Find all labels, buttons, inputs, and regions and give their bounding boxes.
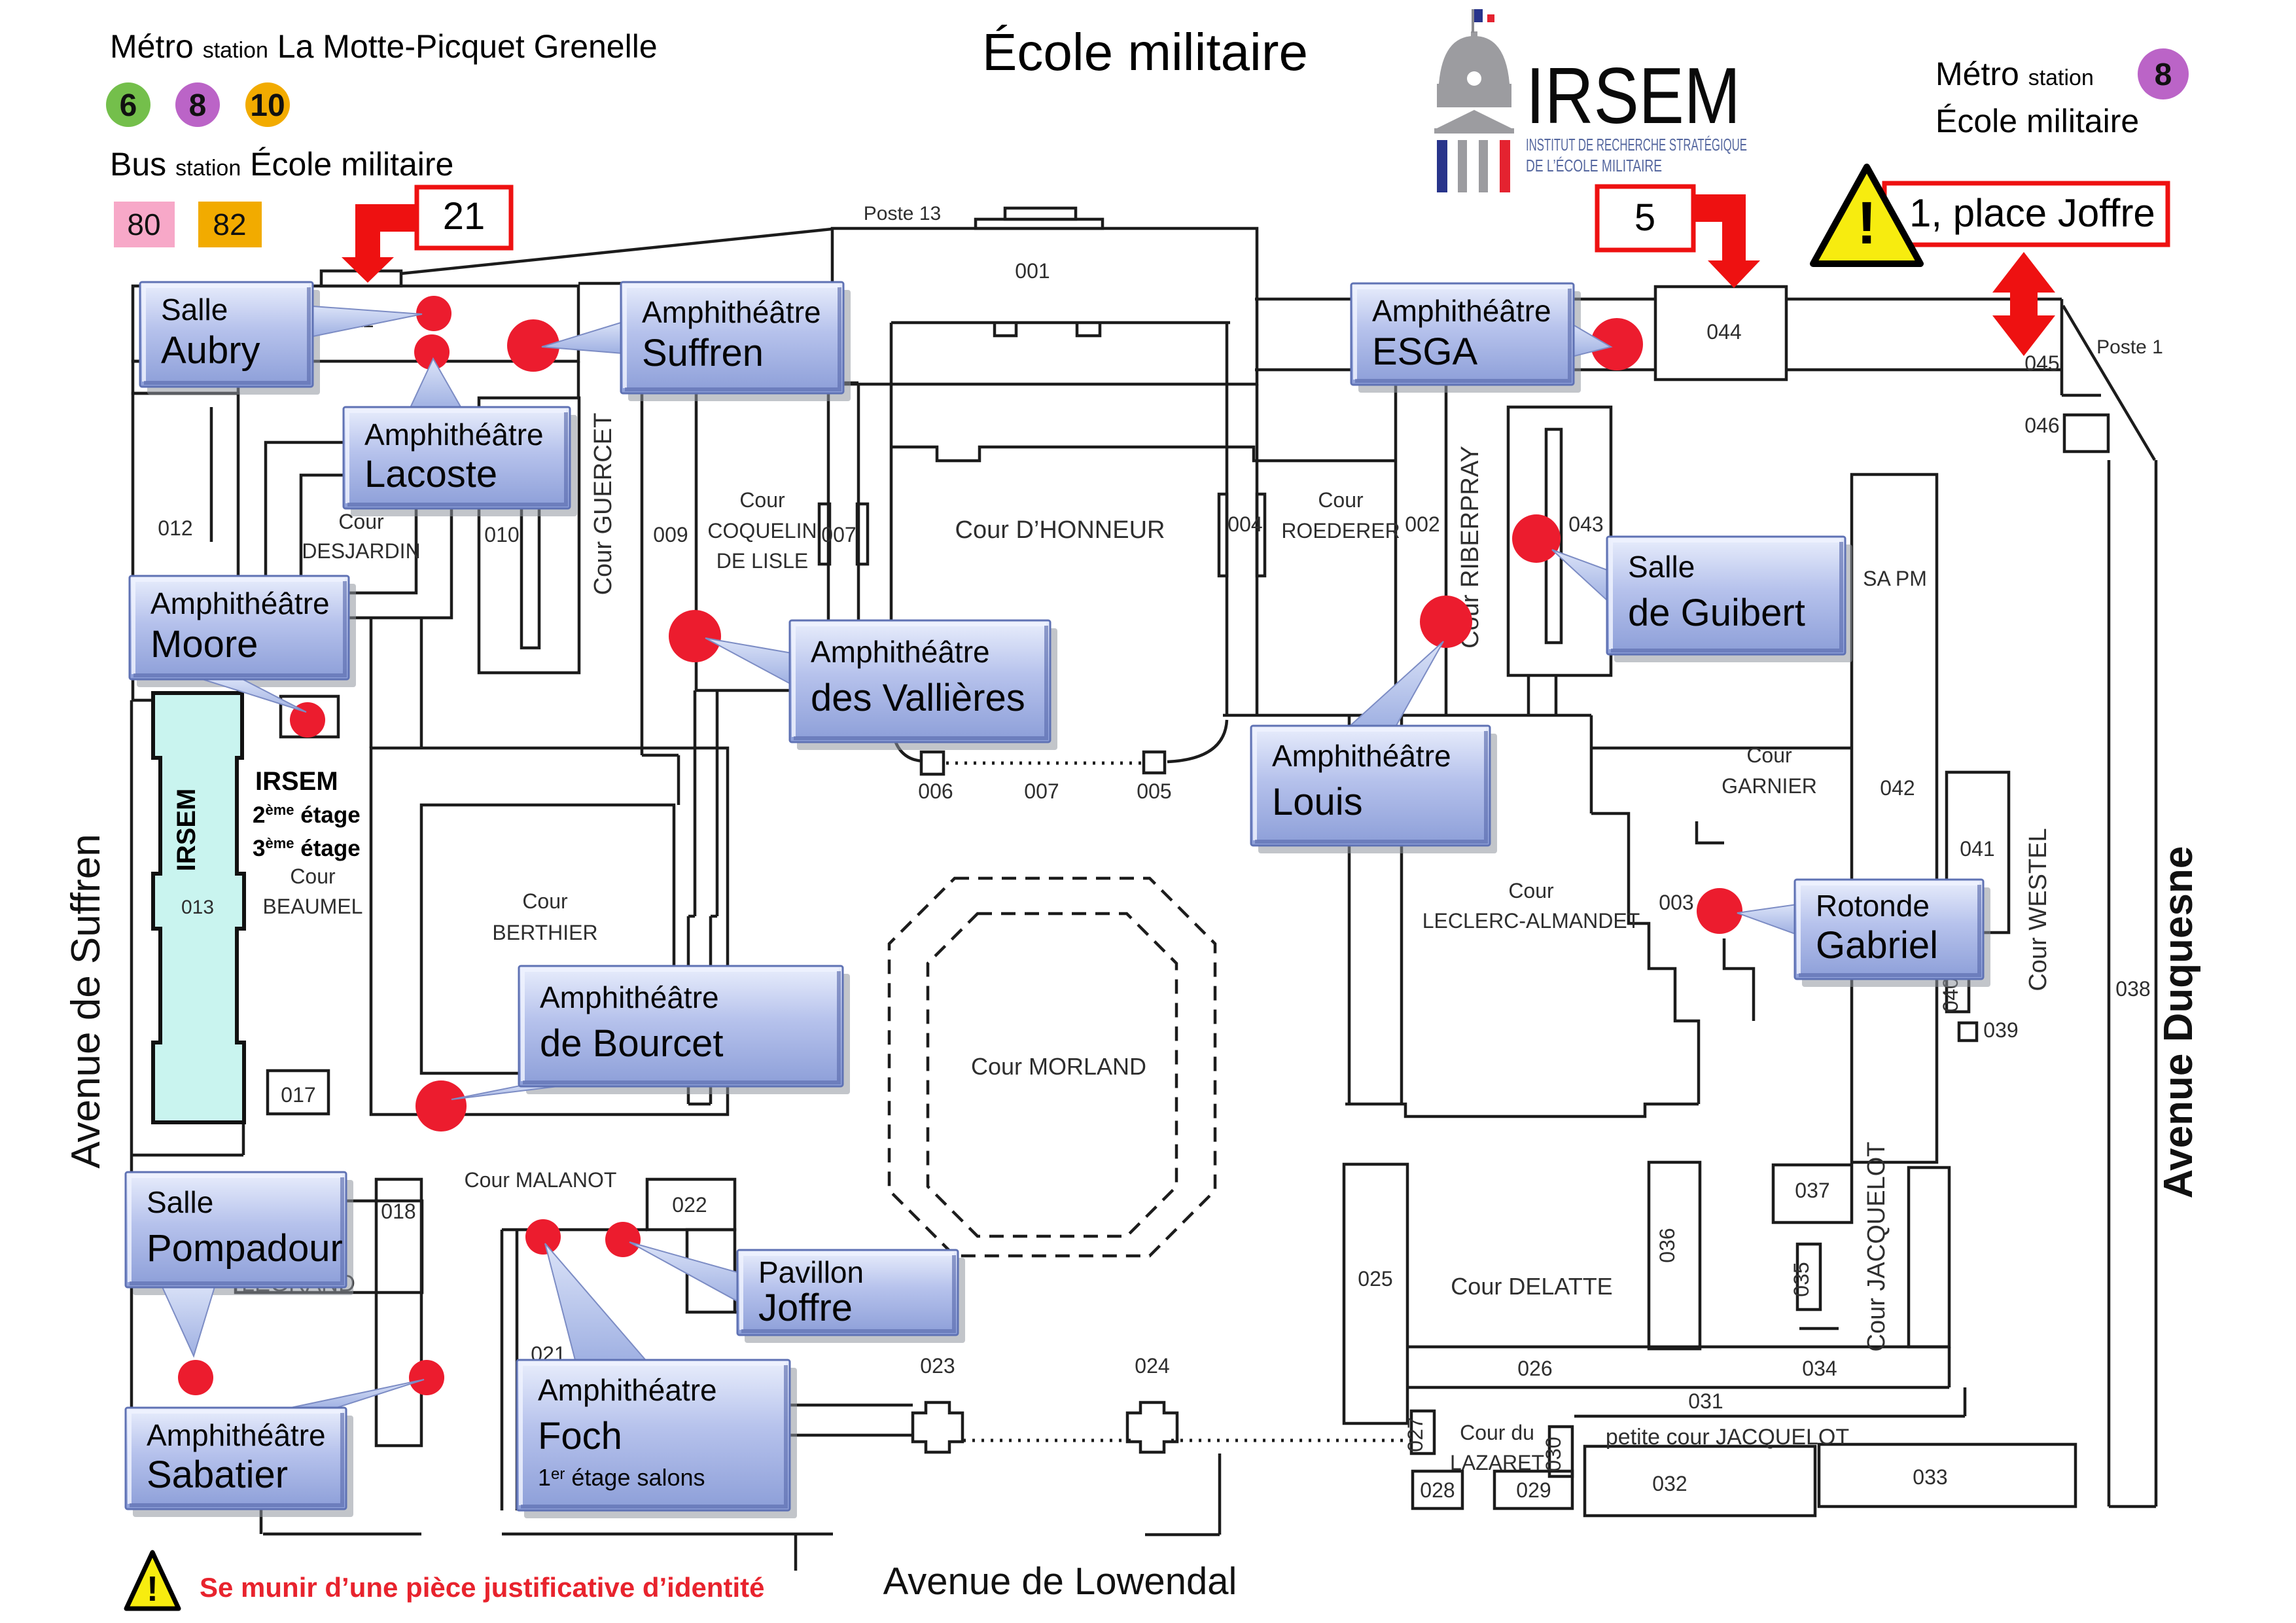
svg-text:Salle: Salle (161, 293, 228, 327)
svg-text:Cour: Cour (290, 865, 336, 888)
svg-text:044: 044 (1706, 320, 1741, 344)
svg-text:Cour JACQUELOT: Cour JACQUELOT (1863, 1142, 1890, 1352)
svg-text:5: 5 (1634, 196, 1655, 239)
svg-text:Lacoste: Lacoste (364, 453, 497, 495)
svg-text:Amphithéatre: Amphithéatre (538, 1373, 717, 1407)
svg-text:Sabatier: Sabatier (147, 1454, 288, 1496)
svg-text:012: 012 (158, 516, 192, 540)
svg-text:COQUELIN: COQUELIN (707, 519, 817, 543)
svg-text:petite cour JACQUELOT: petite cour JACQUELOT (1606, 1425, 1849, 1450)
svg-text:Cour: Cour (1746, 743, 1792, 767)
svg-text:Cour: Cour (522, 889, 568, 913)
svg-text:Cour: Cour (1318, 488, 1364, 512)
svg-text:033: 033 (1913, 1465, 1947, 1489)
svg-text:023: 023 (920, 1354, 955, 1378)
svg-text:Poste 13: Poste 13 (864, 203, 941, 224)
svg-text:007: 007 (1024, 779, 1059, 803)
svg-text:039: 039 (1983, 1018, 2018, 1042)
svg-text:004: 004 (1227, 512, 1262, 536)
svg-text:006: 006 (918, 779, 953, 803)
svg-text:Poste 1: Poste 1 (2096, 336, 2163, 358)
svg-text:Amphithéâtre: Amphithéâtre (1372, 294, 1551, 328)
svg-text:Amphithéâtre: Amphithéâtre (147, 1418, 326, 1452)
svg-text:Cour GUERCET: Cour GUERCET (590, 413, 617, 596)
svg-text:007: 007 (821, 523, 856, 546)
svg-text:013: 013 (181, 897, 214, 918)
svg-text:Moore: Moore (150, 623, 258, 666)
svg-text:Aubry: Aubry (161, 329, 260, 372)
svg-text:028: 028 (1420, 1478, 1455, 1502)
svg-text:BERTHIER: BERTHIER (492, 921, 597, 944)
svg-text:Suffren: Suffren (642, 332, 764, 374)
svg-text:Salle: Salle (147, 1185, 213, 1219)
svg-text:025: 025 (1358, 1267, 1392, 1291)
svg-text:Cour du: Cour du (1460, 1421, 1534, 1444)
svg-text:8: 8 (2155, 58, 2172, 92)
svg-text:GARNIER: GARNIER (1722, 774, 1817, 798)
svg-text:Gabriel: Gabriel (1816, 924, 1938, 967)
svg-text:SA PM: SA PM (1863, 567, 1927, 590)
svg-text:Pavillon: Pavillon (758, 1255, 864, 1289)
svg-text:80: 80 (127, 207, 160, 241)
svg-text:IRSEM: IRSEM (255, 767, 338, 796)
svg-text:005: 005 (1137, 779, 1171, 803)
svg-text:INSTITUT DE RECHERCHE STRATÉGI: INSTITUT DE RECHERCHE STRATÉGIQUE (1526, 135, 1747, 154)
svg-text:IRSEM: IRSEM (1526, 51, 1740, 140)
svg-text:Cour DELATTE: Cour DELATTE (1451, 1273, 1612, 1300)
svg-text:École militaire: École militaire (982, 23, 1308, 81)
svg-text:029: 029 (1516, 1478, 1551, 1502)
svg-text:Avenue de Suffren: Avenue de Suffren (63, 834, 109, 1168)
svg-text:Cour: Cour (1508, 879, 1554, 902)
svg-text:003: 003 (1659, 891, 1693, 914)
svg-text:009: 009 (653, 523, 688, 546)
svg-text:Métro station La Motte-Picquet: Métro station La Motte-Picquet Grenelle (110, 28, 658, 65)
svg-text:036: 036 (1655, 1228, 1679, 1262)
svg-text:!: ! (1857, 190, 1877, 257)
svg-text:Amphithéâtre: Amphithéâtre (150, 586, 330, 620)
svg-text:Se munir d’une pièce justifica: Se munir d’une pièce justificative d’ide… (200, 1572, 765, 1603)
svg-text:Pompadour: Pompadour (147, 1227, 343, 1270)
svg-text:8: 8 (189, 88, 207, 123)
svg-text:Louis: Louis (1272, 781, 1363, 823)
svg-text:DE LISLE: DE LISLE (716, 549, 809, 573)
svg-text:Cour: Cour (739, 488, 785, 512)
svg-text:Rotonde: Rotonde (1816, 889, 1930, 923)
svg-text:031: 031 (1688, 1389, 1723, 1413)
svg-text:001: 001 (1015, 259, 1050, 283)
svg-text:Avenue Duquesne: Avenue Duquesne (2156, 846, 2201, 1199)
svg-text:038: 038 (2115, 977, 2150, 1001)
svg-text:018: 018 (381, 1200, 415, 1223)
svg-text:ROEDERER: ROEDERER (1281, 519, 1400, 543)
svg-text:Amphithéâtre: Amphithéâtre (540, 980, 719, 1014)
svg-text:Cour MORLAND: Cour MORLAND (971, 1053, 1146, 1080)
svg-text:022: 022 (672, 1193, 707, 1217)
svg-text:026: 026 (1517, 1357, 1552, 1380)
svg-text:Joffre: Joffre (758, 1287, 853, 1329)
svg-text:Amphithéâtre: Amphithéâtre (364, 418, 544, 452)
svg-text:6: 6 (120, 88, 137, 123)
svg-text:1, place Joffre: 1, place Joffre (1909, 191, 2155, 235)
svg-text:Amphithéâtre: Amphithéâtre (642, 295, 821, 329)
svg-text:045: 045 (2024, 351, 2059, 375)
svg-text:043: 043 (1568, 512, 1603, 536)
svg-text:042: 042 (1880, 776, 1915, 800)
svg-text:Foch: Foch (538, 1415, 622, 1457)
svg-text:de Guibert: de Guibert (1628, 592, 1805, 634)
svg-text:Salle: Salle (1628, 550, 1695, 584)
svg-text:ESGA: ESGA (1372, 330, 1477, 373)
svg-text:041: 041 (1960, 837, 1994, 861)
svg-text:LAZARET: LAZARET (1450, 1451, 1544, 1474)
svg-text:IRSEM: IRSEM (172, 789, 201, 872)
svg-text:Cour MALANOT: Cour MALANOT (465, 1168, 617, 1192)
svg-text:034: 034 (1802, 1357, 1837, 1380)
svg-text:030: 030 (1542, 1436, 1565, 1471)
svg-text:!: ! (147, 1569, 158, 1609)
svg-text:LECLERC-ALMANDET: LECLERC-ALMANDET (1422, 909, 1640, 933)
svg-text:82: 82 (213, 207, 246, 241)
svg-text:Bus station École militaire: Bus station École militaire (110, 146, 453, 183)
svg-text:Amphithéâtre: Amphithéâtre (1272, 739, 1451, 773)
svg-text:Avenue de Lowendal: Avenue de Lowendal (883, 1560, 1237, 1603)
svg-text:Amphithéâtre: Amphithéâtre (811, 635, 990, 669)
svg-text:DESJARDIN: DESJARDIN (302, 539, 420, 563)
svg-text:de Bourcet: de Bourcet (540, 1022, 724, 1065)
svg-text:Cour D’HONNEUR: Cour D’HONNEUR (955, 516, 1165, 544)
svg-text:002: 002 (1405, 512, 1439, 536)
svg-text:BEAUMEL: BEAUMEL (263, 895, 363, 918)
svg-text:des Vallières: des Vallières (811, 677, 1025, 719)
svg-text:10: 10 (250, 88, 285, 123)
svg-text:032: 032 (1652, 1472, 1687, 1495)
svg-text:21: 21 (443, 195, 486, 238)
svg-text:DE L’ÉCOLE MILITAIRE: DE L’ÉCOLE MILITAIRE (1526, 156, 1662, 175)
svg-text:035: 035 (1790, 1262, 1813, 1296)
svg-text:024: 024 (1135, 1354, 1169, 1378)
svg-text:010: 010 (484, 523, 519, 546)
svg-text:027: 027 (1404, 1417, 1427, 1452)
svg-text:037: 037 (1795, 1179, 1829, 1202)
svg-text:École militaire: École militaire (1935, 103, 2139, 139)
svg-text:Cour WESTEL: Cour WESTEL (2024, 828, 2052, 991)
svg-text:017: 017 (281, 1083, 315, 1107)
svg-text:046: 046 (2024, 414, 2059, 437)
